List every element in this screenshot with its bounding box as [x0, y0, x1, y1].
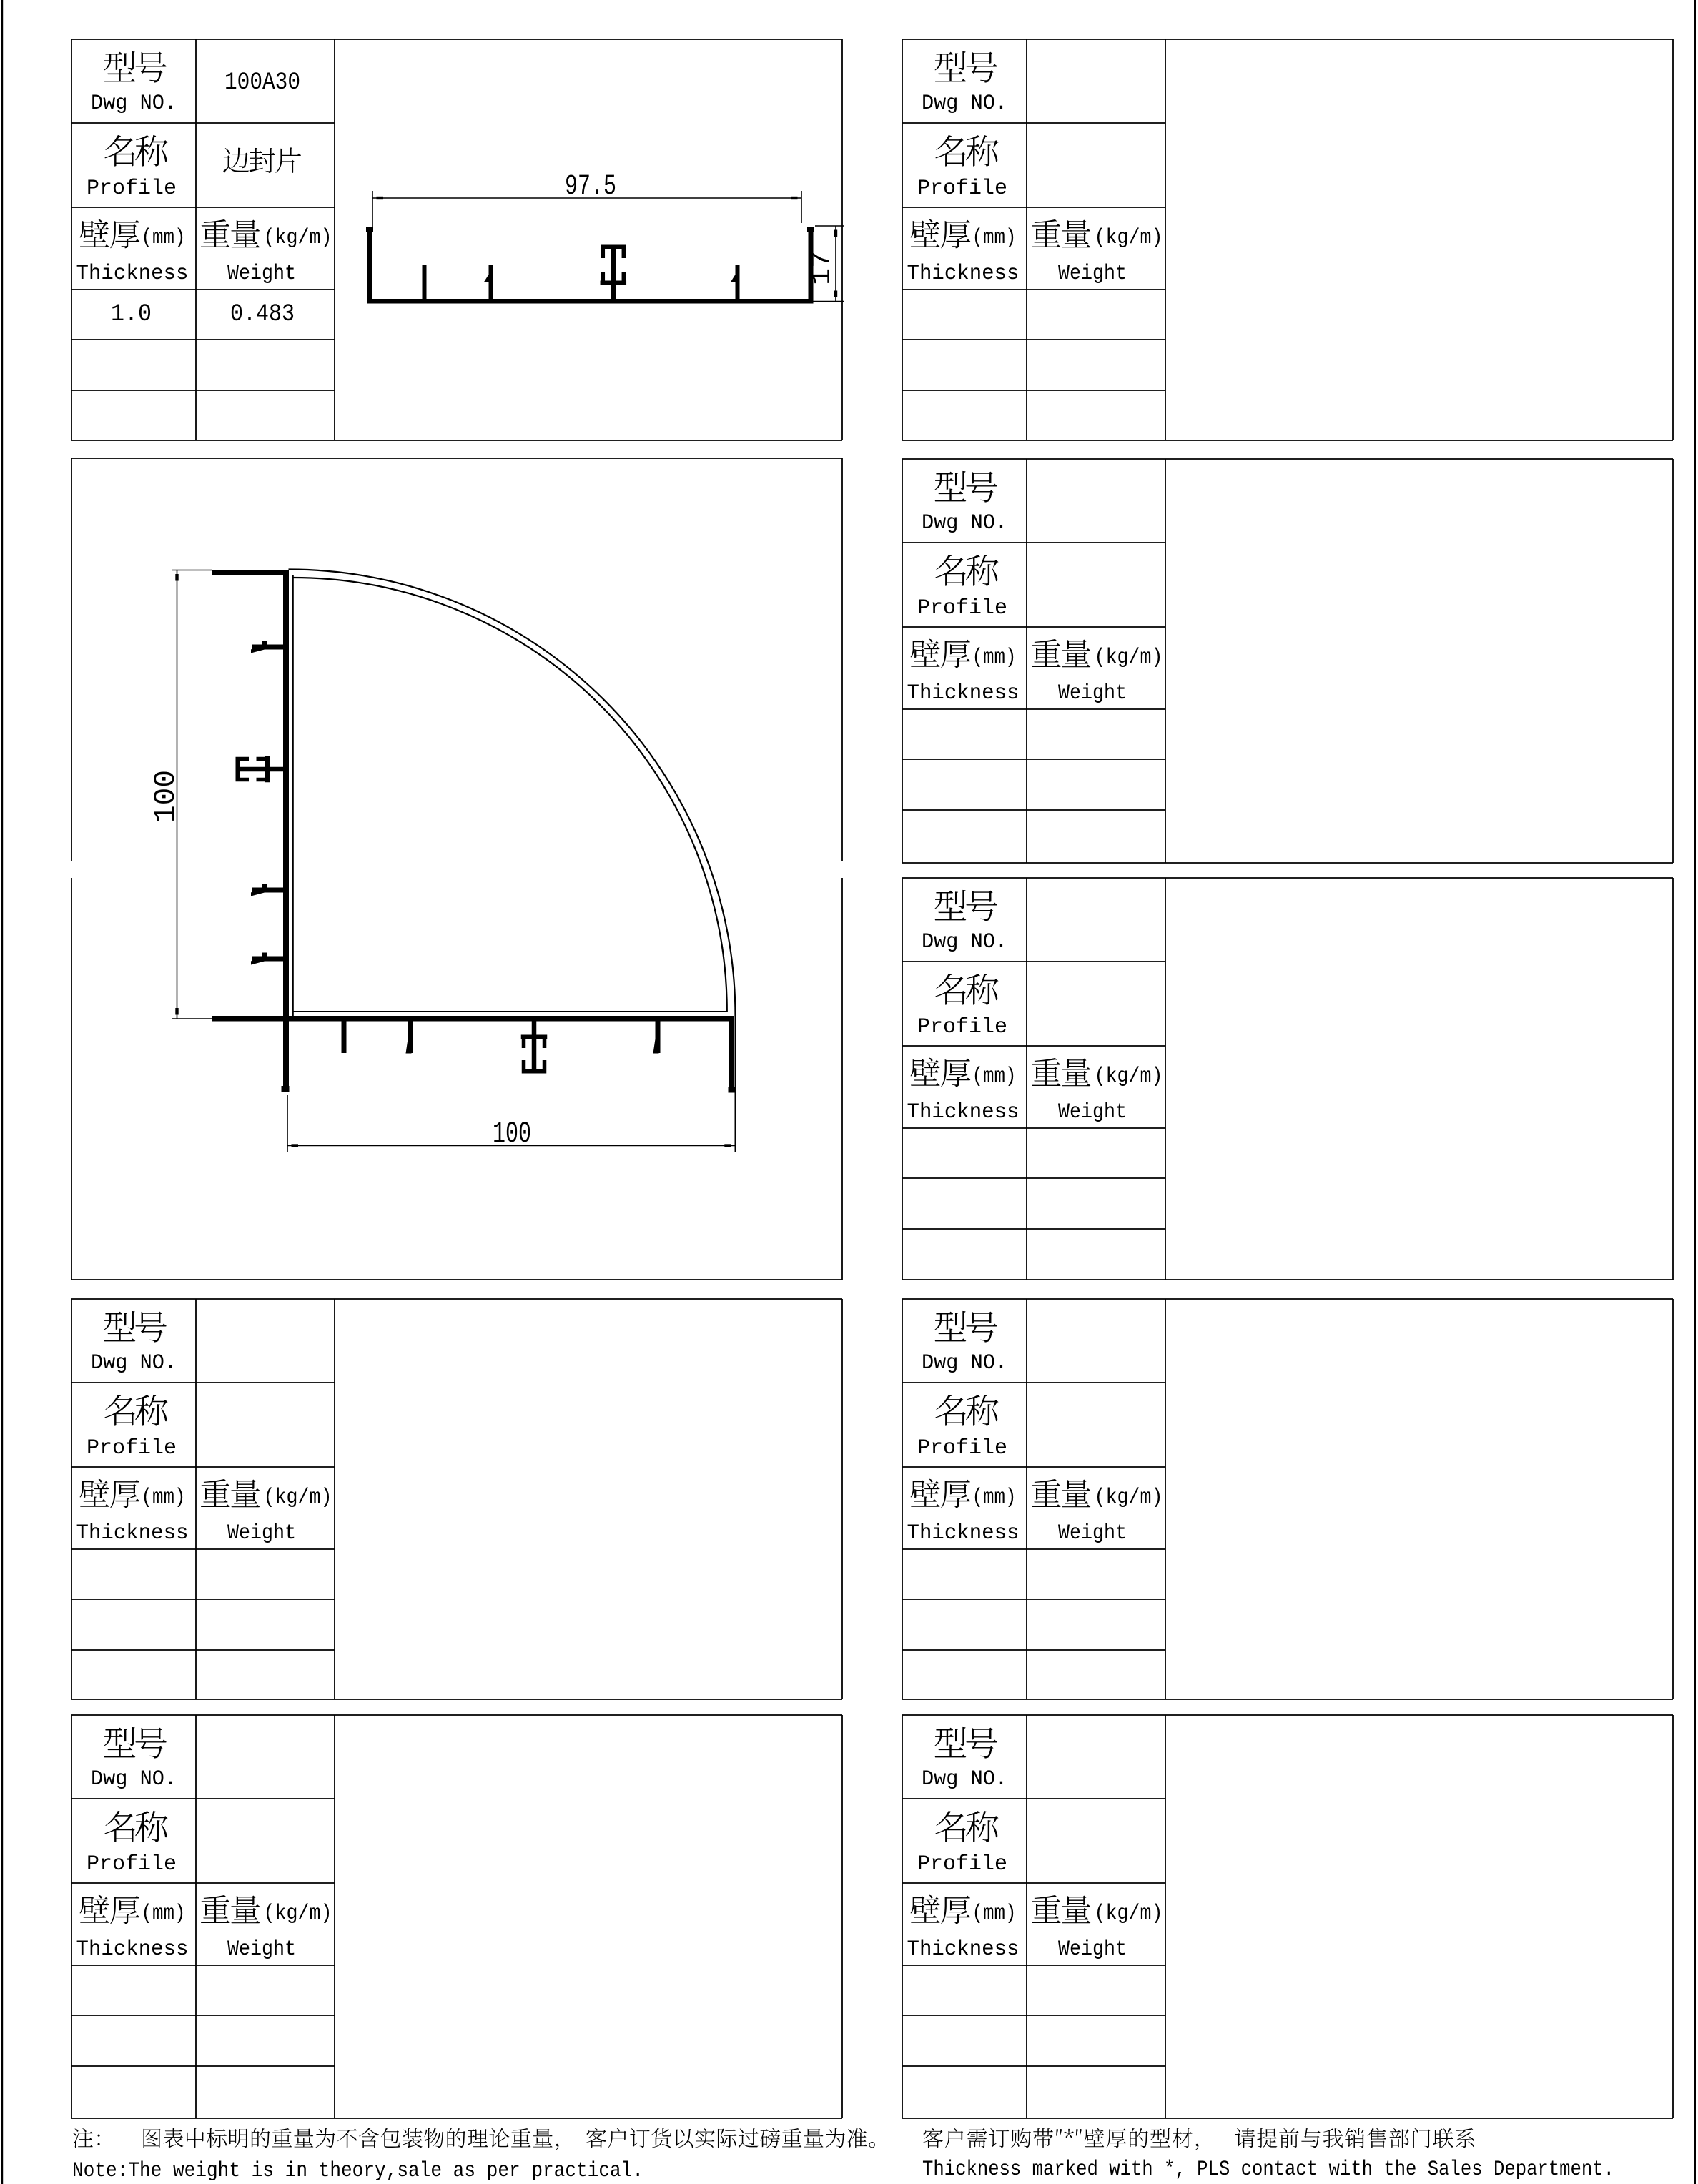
- svg-text:Thickness: Thickness: [907, 1100, 1020, 1125]
- svg-text:Weight: Weight: [227, 1937, 296, 1962]
- svg-text:Thickness: Thickness: [907, 681, 1020, 706]
- svg-text:0.483: 0.483: [230, 301, 295, 328]
- svg-text:(mm): (mm): [142, 1902, 186, 1926]
- svg-text:(kg/m): (kg/m): [264, 226, 332, 250]
- svg-text:(mm): (mm): [972, 226, 1017, 250]
- svg-text:(mm): (mm): [142, 226, 186, 250]
- svg-text:(kg/m): (kg/m): [1095, 1486, 1163, 1510]
- svg-text:100: 100: [493, 1117, 531, 1151]
- svg-text:(mm): (mm): [972, 646, 1017, 670]
- svg-text:Dwg NO.: Dwg NO.: [91, 1767, 177, 1792]
- svg-text:Profile: Profile: [917, 596, 1007, 621]
- svg-text:Dwg NO.: Dwg NO.: [91, 92, 177, 116]
- svg-text:Dwg NO.: Dwg NO.: [91, 1351, 177, 1375]
- svg-text:(kg/m): (kg/m): [264, 1902, 332, 1926]
- svg-text:100A30: 100A30: [224, 69, 300, 97]
- svg-text:Profile: Profile: [87, 177, 177, 201]
- svg-text:(mm): (mm): [142, 1486, 186, 1510]
- svg-text:(mm): (mm): [972, 1486, 1017, 1510]
- svg-text:Thickness marked with *, PLS c: Thickness marked with *, PLS contact wit…: [922, 2158, 1614, 2182]
- svg-text:(kg/m): (kg/m): [1095, 1902, 1163, 1926]
- svg-text:Dwg NO.: Dwg NO.: [922, 92, 1007, 116]
- svg-text:Weight: Weight: [1058, 262, 1127, 286]
- svg-text:Thickness: Thickness: [907, 262, 1020, 286]
- svg-text:(mm): (mm): [972, 1064, 1017, 1089]
- svg-text:Dwg NO.: Dwg NO.: [922, 1767, 1007, 1792]
- svg-text:100: 100: [149, 770, 183, 823]
- svg-text:Profile: Profile: [917, 1436, 1007, 1461]
- svg-text:Dwg NO.: Dwg NO.: [922, 930, 1007, 954]
- svg-text:Thickness: Thickness: [907, 1937, 1020, 1962]
- svg-text:Thickness: Thickness: [76, 1937, 189, 1962]
- svg-text:Weight: Weight: [1058, 1937, 1127, 1962]
- svg-text:Profile: Profile: [917, 1852, 1007, 1877]
- svg-text:(kg/m): (kg/m): [1095, 1064, 1163, 1089]
- svg-text:1.0: 1.0: [111, 301, 152, 328]
- svg-text:Profile: Profile: [87, 1436, 177, 1461]
- svg-text:97.5: 97.5: [565, 171, 616, 203]
- svg-text:Profile: Profile: [917, 1015, 1007, 1039]
- svg-text:Weight: Weight: [1058, 681, 1127, 706]
- svg-text:Thickness: Thickness: [907, 1521, 1020, 1546]
- svg-text:(kg/m): (kg/m): [264, 1486, 332, 1510]
- svg-text:Profile: Profile: [917, 177, 1007, 201]
- svg-text:17: 17: [807, 251, 838, 285]
- svg-text:(kg/m): (kg/m): [1095, 646, 1163, 670]
- svg-text:Weight: Weight: [1058, 1100, 1127, 1125]
- svg-text:(mm): (mm): [972, 1902, 1017, 1926]
- svg-text:Thickness: Thickness: [76, 1521, 189, 1546]
- svg-text:Dwg NO.: Dwg NO.: [922, 511, 1007, 535]
- svg-text:Dwg NO.: Dwg NO.: [922, 1351, 1007, 1375]
- svg-text:Weight: Weight: [227, 262, 296, 286]
- svg-text:Weight: Weight: [227, 1521, 296, 1546]
- svg-text:Thickness: Thickness: [76, 262, 189, 286]
- svg-text:(kg/m): (kg/m): [1095, 226, 1163, 250]
- svg-text:Note:The weight is in theory,s: Note:The weight is in theory,sale as per…: [72, 2159, 643, 2183]
- svg-text:Weight: Weight: [1058, 1521, 1127, 1546]
- svg-text:Profile: Profile: [87, 1852, 177, 1877]
